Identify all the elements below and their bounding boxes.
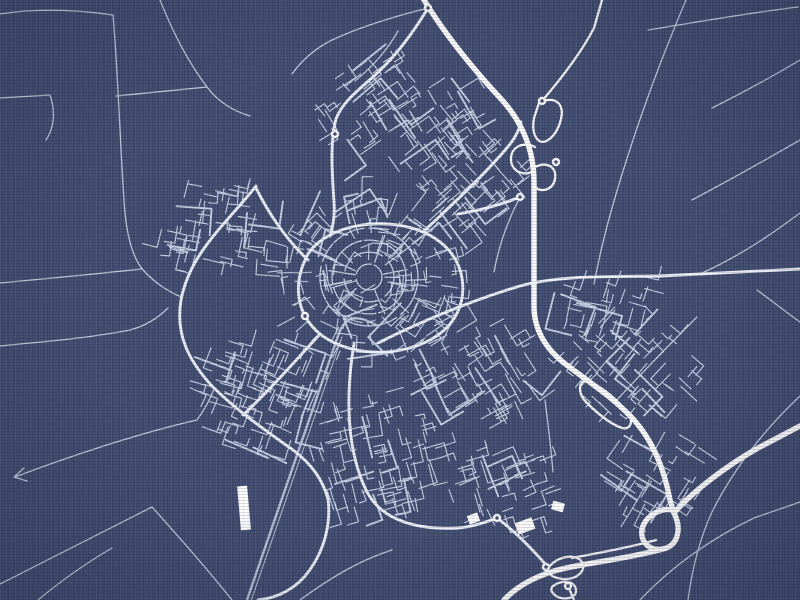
blueprint-city-map-poster xyxy=(0,0,800,600)
road-network-svg xyxy=(0,0,800,600)
